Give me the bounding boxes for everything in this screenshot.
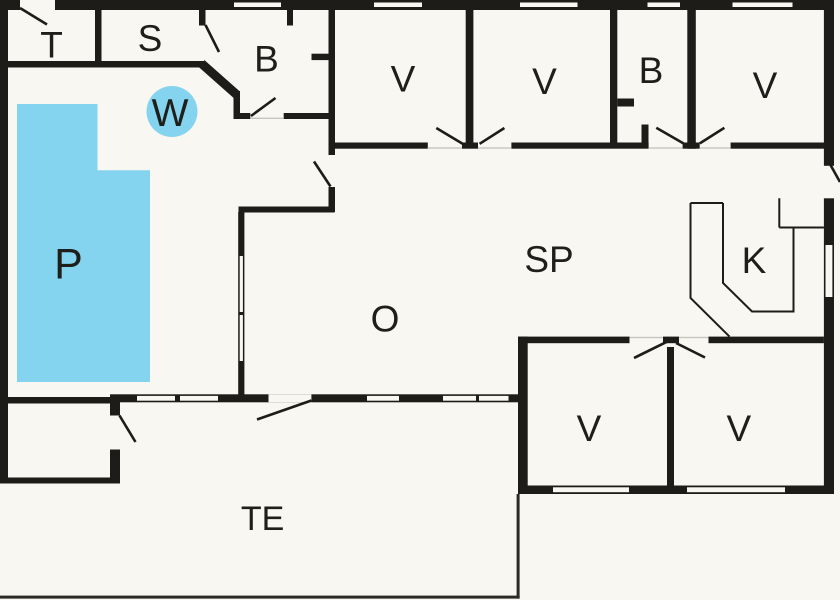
svg-text:V: V xyxy=(753,65,778,106)
svg-text:B: B xyxy=(254,39,279,80)
svg-text:O: O xyxy=(371,299,400,340)
svg-text:TE: TE xyxy=(241,500,284,538)
svg-text:K: K xyxy=(742,240,767,281)
svg-text:V: V xyxy=(532,61,557,102)
svg-text:B: B xyxy=(639,50,664,91)
svg-text:V: V xyxy=(577,408,602,449)
svg-text:SP: SP xyxy=(524,239,573,280)
svg-text:V: V xyxy=(726,408,751,449)
svg-text:P: P xyxy=(54,241,83,289)
svg-text:V: V xyxy=(391,59,416,100)
svg-text:W: W xyxy=(152,92,189,135)
svg-text:S: S xyxy=(138,18,163,59)
svg-text:T: T xyxy=(40,25,63,66)
